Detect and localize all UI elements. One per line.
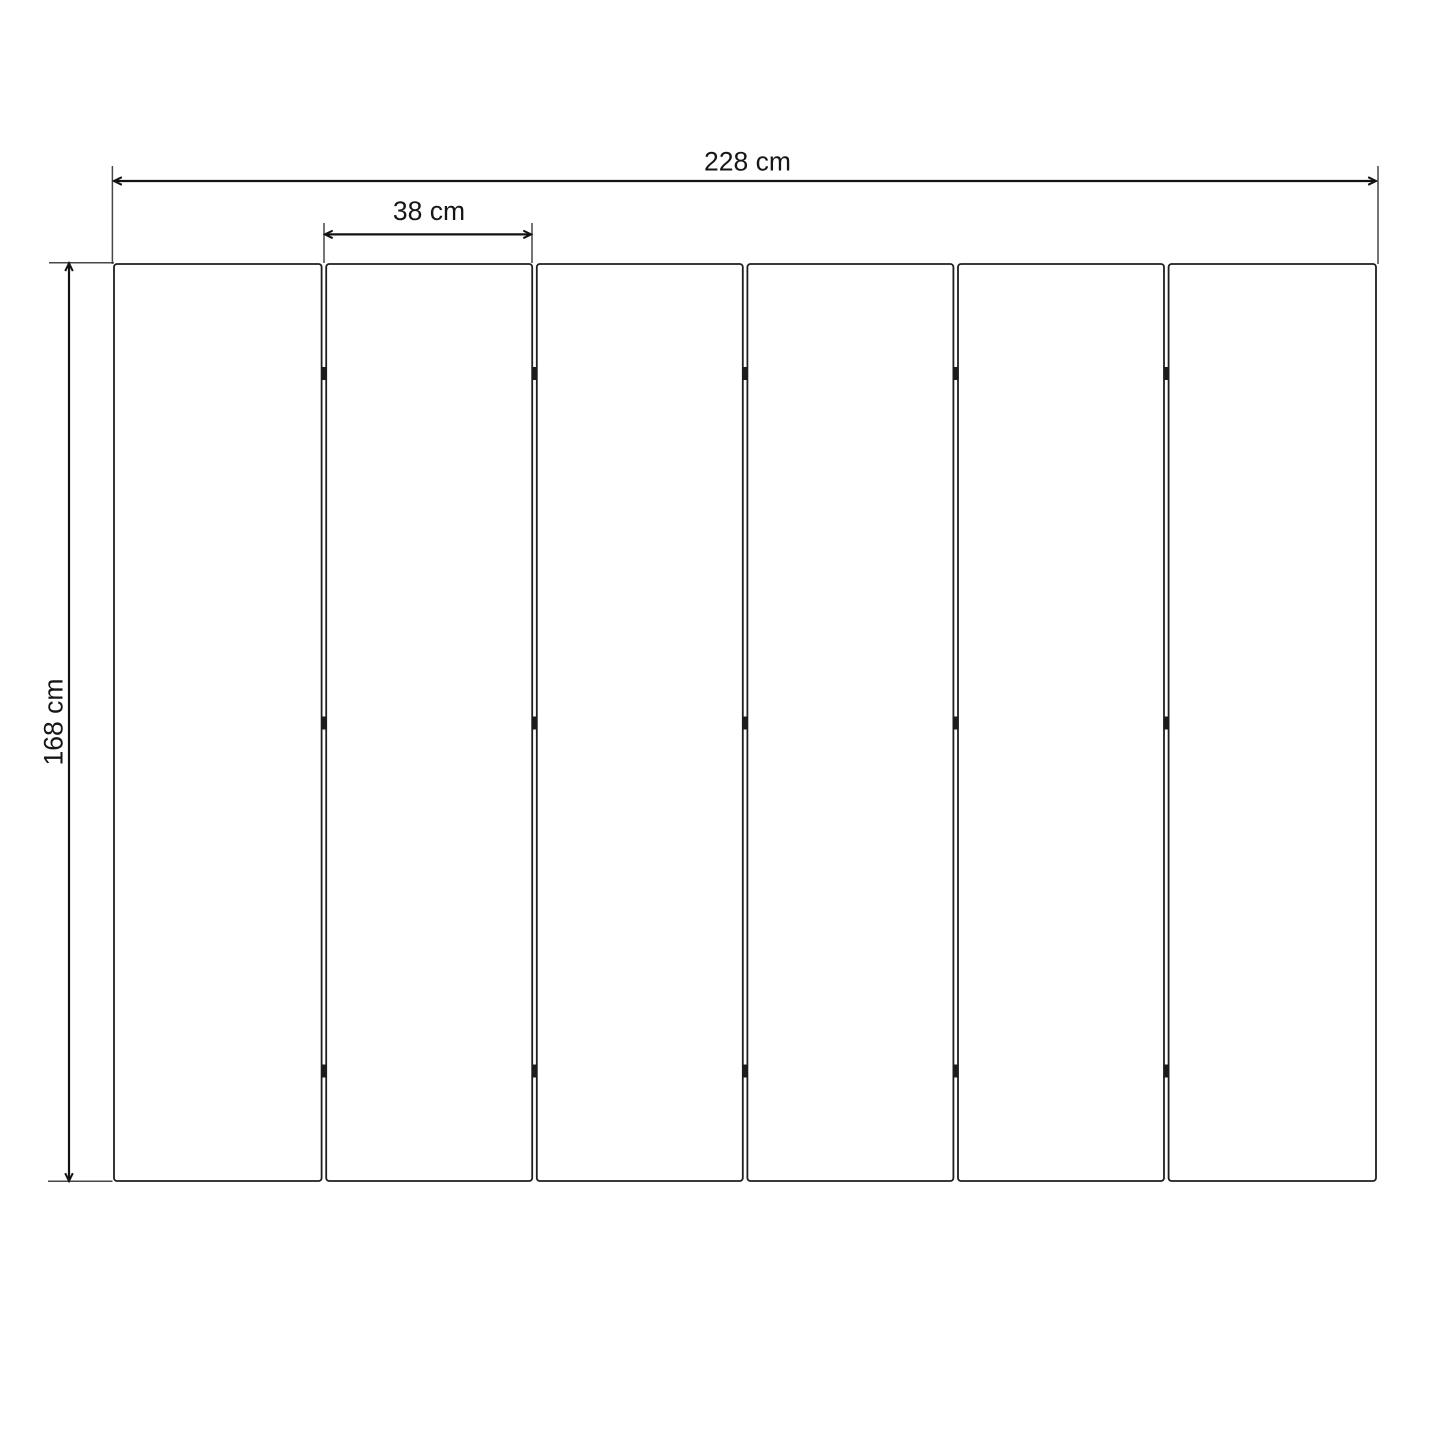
svg-text:168 cm: 168 cm	[39, 679, 69, 766]
svg-text:38 cm: 38 cm	[393, 196, 465, 226]
svg-text:228 cm: 228 cm	[704, 147, 791, 177]
